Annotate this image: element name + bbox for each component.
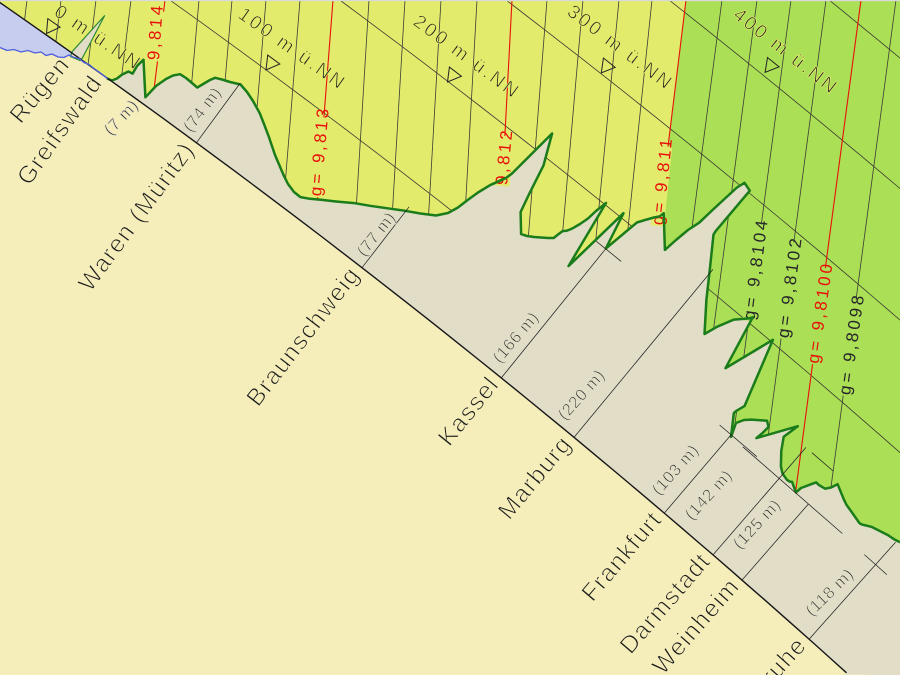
svg-text:9,814: 9,814	[144, 2, 167, 61]
